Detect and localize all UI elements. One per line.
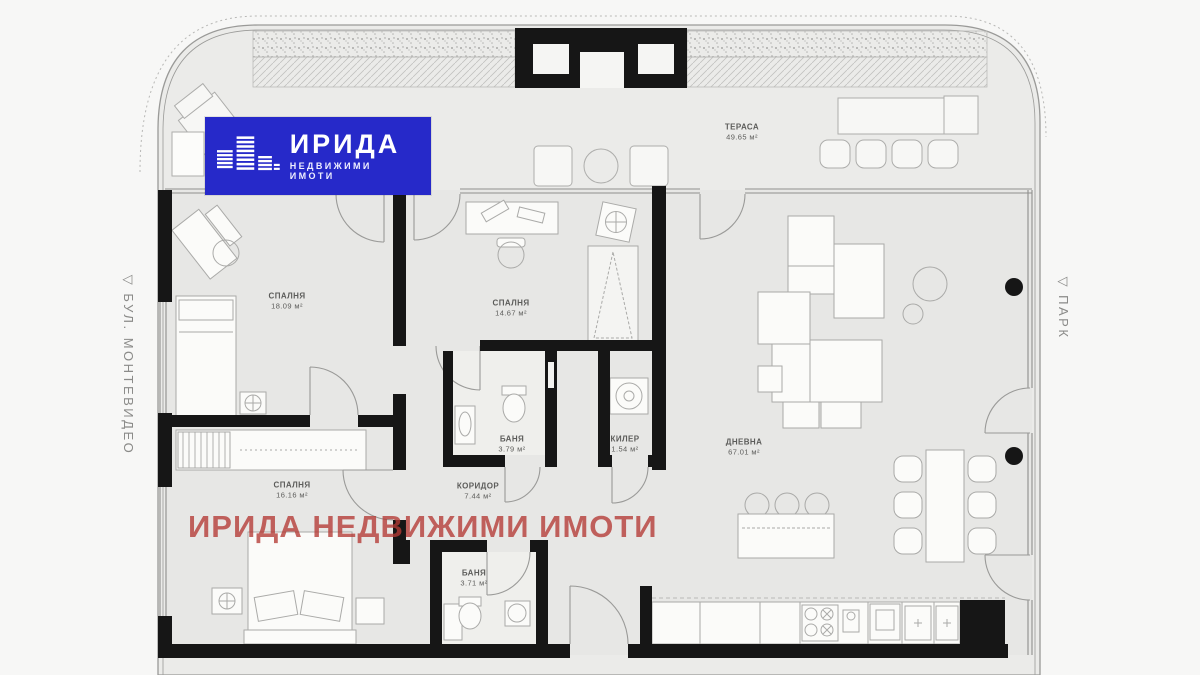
closet-fixtures xyxy=(610,378,648,414)
street-label-montevideo: ▽ БУЛ. МОНТЕВИДЕО xyxy=(120,275,136,455)
wall-niche xyxy=(548,362,554,388)
logo-buildings-icon xyxy=(217,132,280,180)
logo-subtitle: НЕДВИЖИМИ ИМОТИ xyxy=(290,161,419,181)
watermark-text: ИРИДА НЕДВИЖИМИ ИМОТИ xyxy=(188,509,658,545)
agency-logo: ИРИДА НЕДВИЖИМИ ИМОТИ xyxy=(205,117,431,195)
floor-plan-drawing xyxy=(0,0,1200,675)
floor-plan-page: ТЕРАСА49.65 м² СПАЛНЯ18.09 м² СПАЛНЯ14.6… xyxy=(0,0,1200,675)
kitchen-counter xyxy=(652,598,1005,644)
shaft-block xyxy=(515,28,687,88)
park-label: ▽ ПАРК xyxy=(1055,277,1071,340)
logo-title: ИРИДА xyxy=(290,131,419,158)
